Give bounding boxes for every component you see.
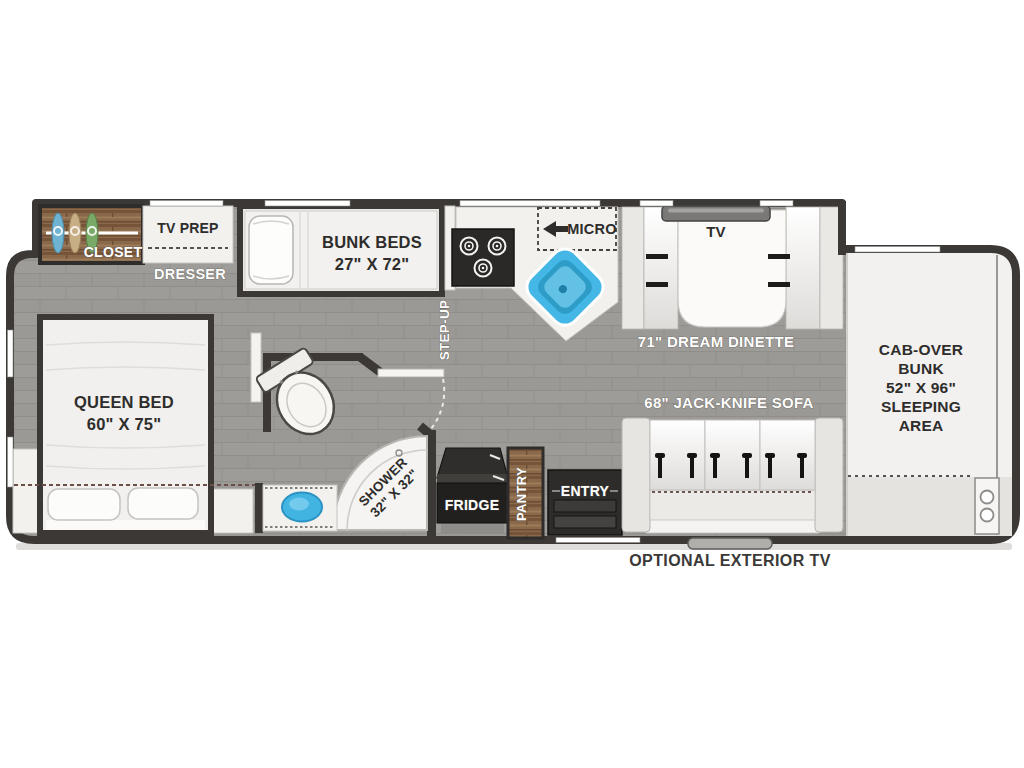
- pantry: PANTRY: [508, 448, 543, 538]
- sofa-seat: [650, 490, 815, 520]
- closet-label: CLOSET: [84, 244, 143, 260]
- entry-step: [554, 516, 616, 528]
- entry-door-opening: [556, 538, 640, 543]
- pantry-label: PANTRY: [514, 467, 529, 521]
- queen-bed-size-label: 60" X 75": [87, 415, 161, 433]
- dinette-bench-right: [786, 207, 820, 329]
- sofa-arm-right: [815, 418, 843, 532]
- dinette-bench-outer-left: [622, 207, 644, 329]
- cupholder-icon: [981, 491, 994, 504]
- dresser-label: DRESSER: [154, 266, 226, 282]
- hanger-icon: [69, 213, 81, 253]
- dinette-bench-left: [644, 207, 678, 329]
- vanity-sink-highlight: [289, 498, 309, 511]
- fridge-base: [441, 523, 504, 534]
- nightstand-left: [13, 449, 38, 533]
- exterior-tv-label: OPTIONAL EXTERIOR TV: [629, 552, 831, 569]
- ground-shadow: [16, 543, 1012, 550]
- cab-over-label-3: 52" X 96": [886, 379, 956, 396]
- rv-floorplan: CAB-OVER BUNK 52" X 96" SLEEPING AREA CL…: [0, 0, 1024, 768]
- cooktop: [452, 229, 514, 286]
- hanger-icon: [52, 213, 64, 253]
- tv-label: TV: [706, 223, 726, 240]
- cupholder-icon: [981, 509, 994, 522]
- queen-bed-label: QUEEN BED: [74, 393, 174, 411]
- entry-label: ENTRY: [561, 483, 610, 499]
- fridge-top: [437, 448, 508, 478]
- bed-pillow: [48, 489, 120, 520]
- fridge: FRIDGE: [437, 448, 508, 534]
- window: [8, 437, 14, 487]
- step-up-label: STEP-UP: [437, 300, 452, 361]
- cab-over-label-5: AREA: [899, 417, 944, 434]
- cab-over-label-4: SLEEPING: [881, 398, 961, 415]
- bathroom-cabinet: [251, 333, 261, 402]
- bed-foot-band: [46, 520, 205, 530]
- cab-console: [975, 478, 999, 534]
- entry: ENTRY: [548, 470, 622, 535]
- window: [265, 201, 350, 207]
- sofa-arm-left: [622, 418, 650, 532]
- dream-dinette-label: 71" DREAM DINETTE: [638, 333, 794, 350]
- dinette-table: [678, 210, 786, 327]
- closet: CLOSET: [40, 206, 143, 263]
- micro-label: MICRO: [567, 221, 616, 237]
- tv-unit-highlight: [668, 209, 764, 213]
- vanity-wall: [255, 483, 263, 533]
- floorplan-page: CAB-OVER BUNK 52" X 96" SLEEPING AREA CL…: [0, 0, 1024, 768]
- exterior-tv-unit: [688, 538, 772, 549]
- cab-over-label-2: BUNK: [898, 360, 944, 377]
- tv-prep-dresser: TV PREP DRESSER: [143, 206, 233, 282]
- bunk-pillow: [249, 216, 293, 284]
- nightstand-right: [211, 489, 253, 533]
- window: [8, 330, 14, 377]
- entry-step: [554, 500, 616, 512]
- window: [640, 201, 673, 207]
- dinette-cab-wall: [838, 201, 846, 255]
- bed-pillow: [128, 488, 198, 519]
- shower-wall: [427, 430, 436, 536]
- tv-prep-label: TV PREP: [157, 220, 218, 236]
- window: [460, 201, 600, 207]
- cab-over-label-1: CAB-OVER: [879, 341, 963, 358]
- window: [760, 201, 793, 207]
- window: [150, 201, 223, 207]
- vanity: [255, 483, 337, 533]
- bunk-beds-size-label: 27" X 72": [335, 255, 409, 273]
- bathroom-door: [378, 369, 444, 377]
- window: [855, 247, 940, 253]
- fridge-label: FRIDGE: [445, 497, 500, 513]
- cab-over-area: CAB-OVER BUNK 52" X 96" SLEEPING AREA: [846, 253, 1012, 536]
- tv-unit: [662, 206, 770, 221]
- bunk-beds-label: BUNK BEDS: [322, 233, 422, 251]
- sofa-label: 68" JACK-KNIFE SOFA: [644, 394, 814, 411]
- bunk-beds: BUNK BEDS 27" X 72": [240, 206, 442, 294]
